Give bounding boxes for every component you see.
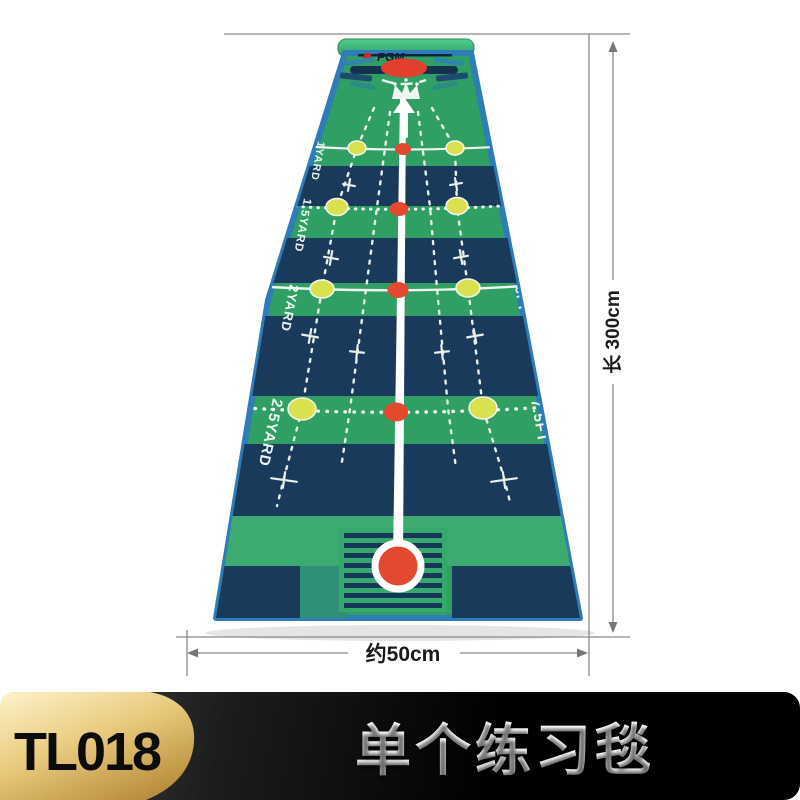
model-badge: TL018	[0, 692, 210, 800]
width-dimension-label: 约50cm	[366, 642, 441, 666]
product-page: PGM	[0, 0, 800, 800]
length-dimension-label: 长 300cm	[602, 290, 624, 373]
mat-shadow	[205, 625, 595, 641]
product-image: PGM	[0, 0, 800, 692]
banner-title: 单个练习毯	[230, 692, 780, 800]
ball-icon	[375, 543, 421, 589]
product-banner: TL018 单个练习毯	[0, 692, 800, 800]
model-number: TL018	[14, 722, 161, 782]
golf-mat-graphic: PGM	[0, 0, 800, 692]
